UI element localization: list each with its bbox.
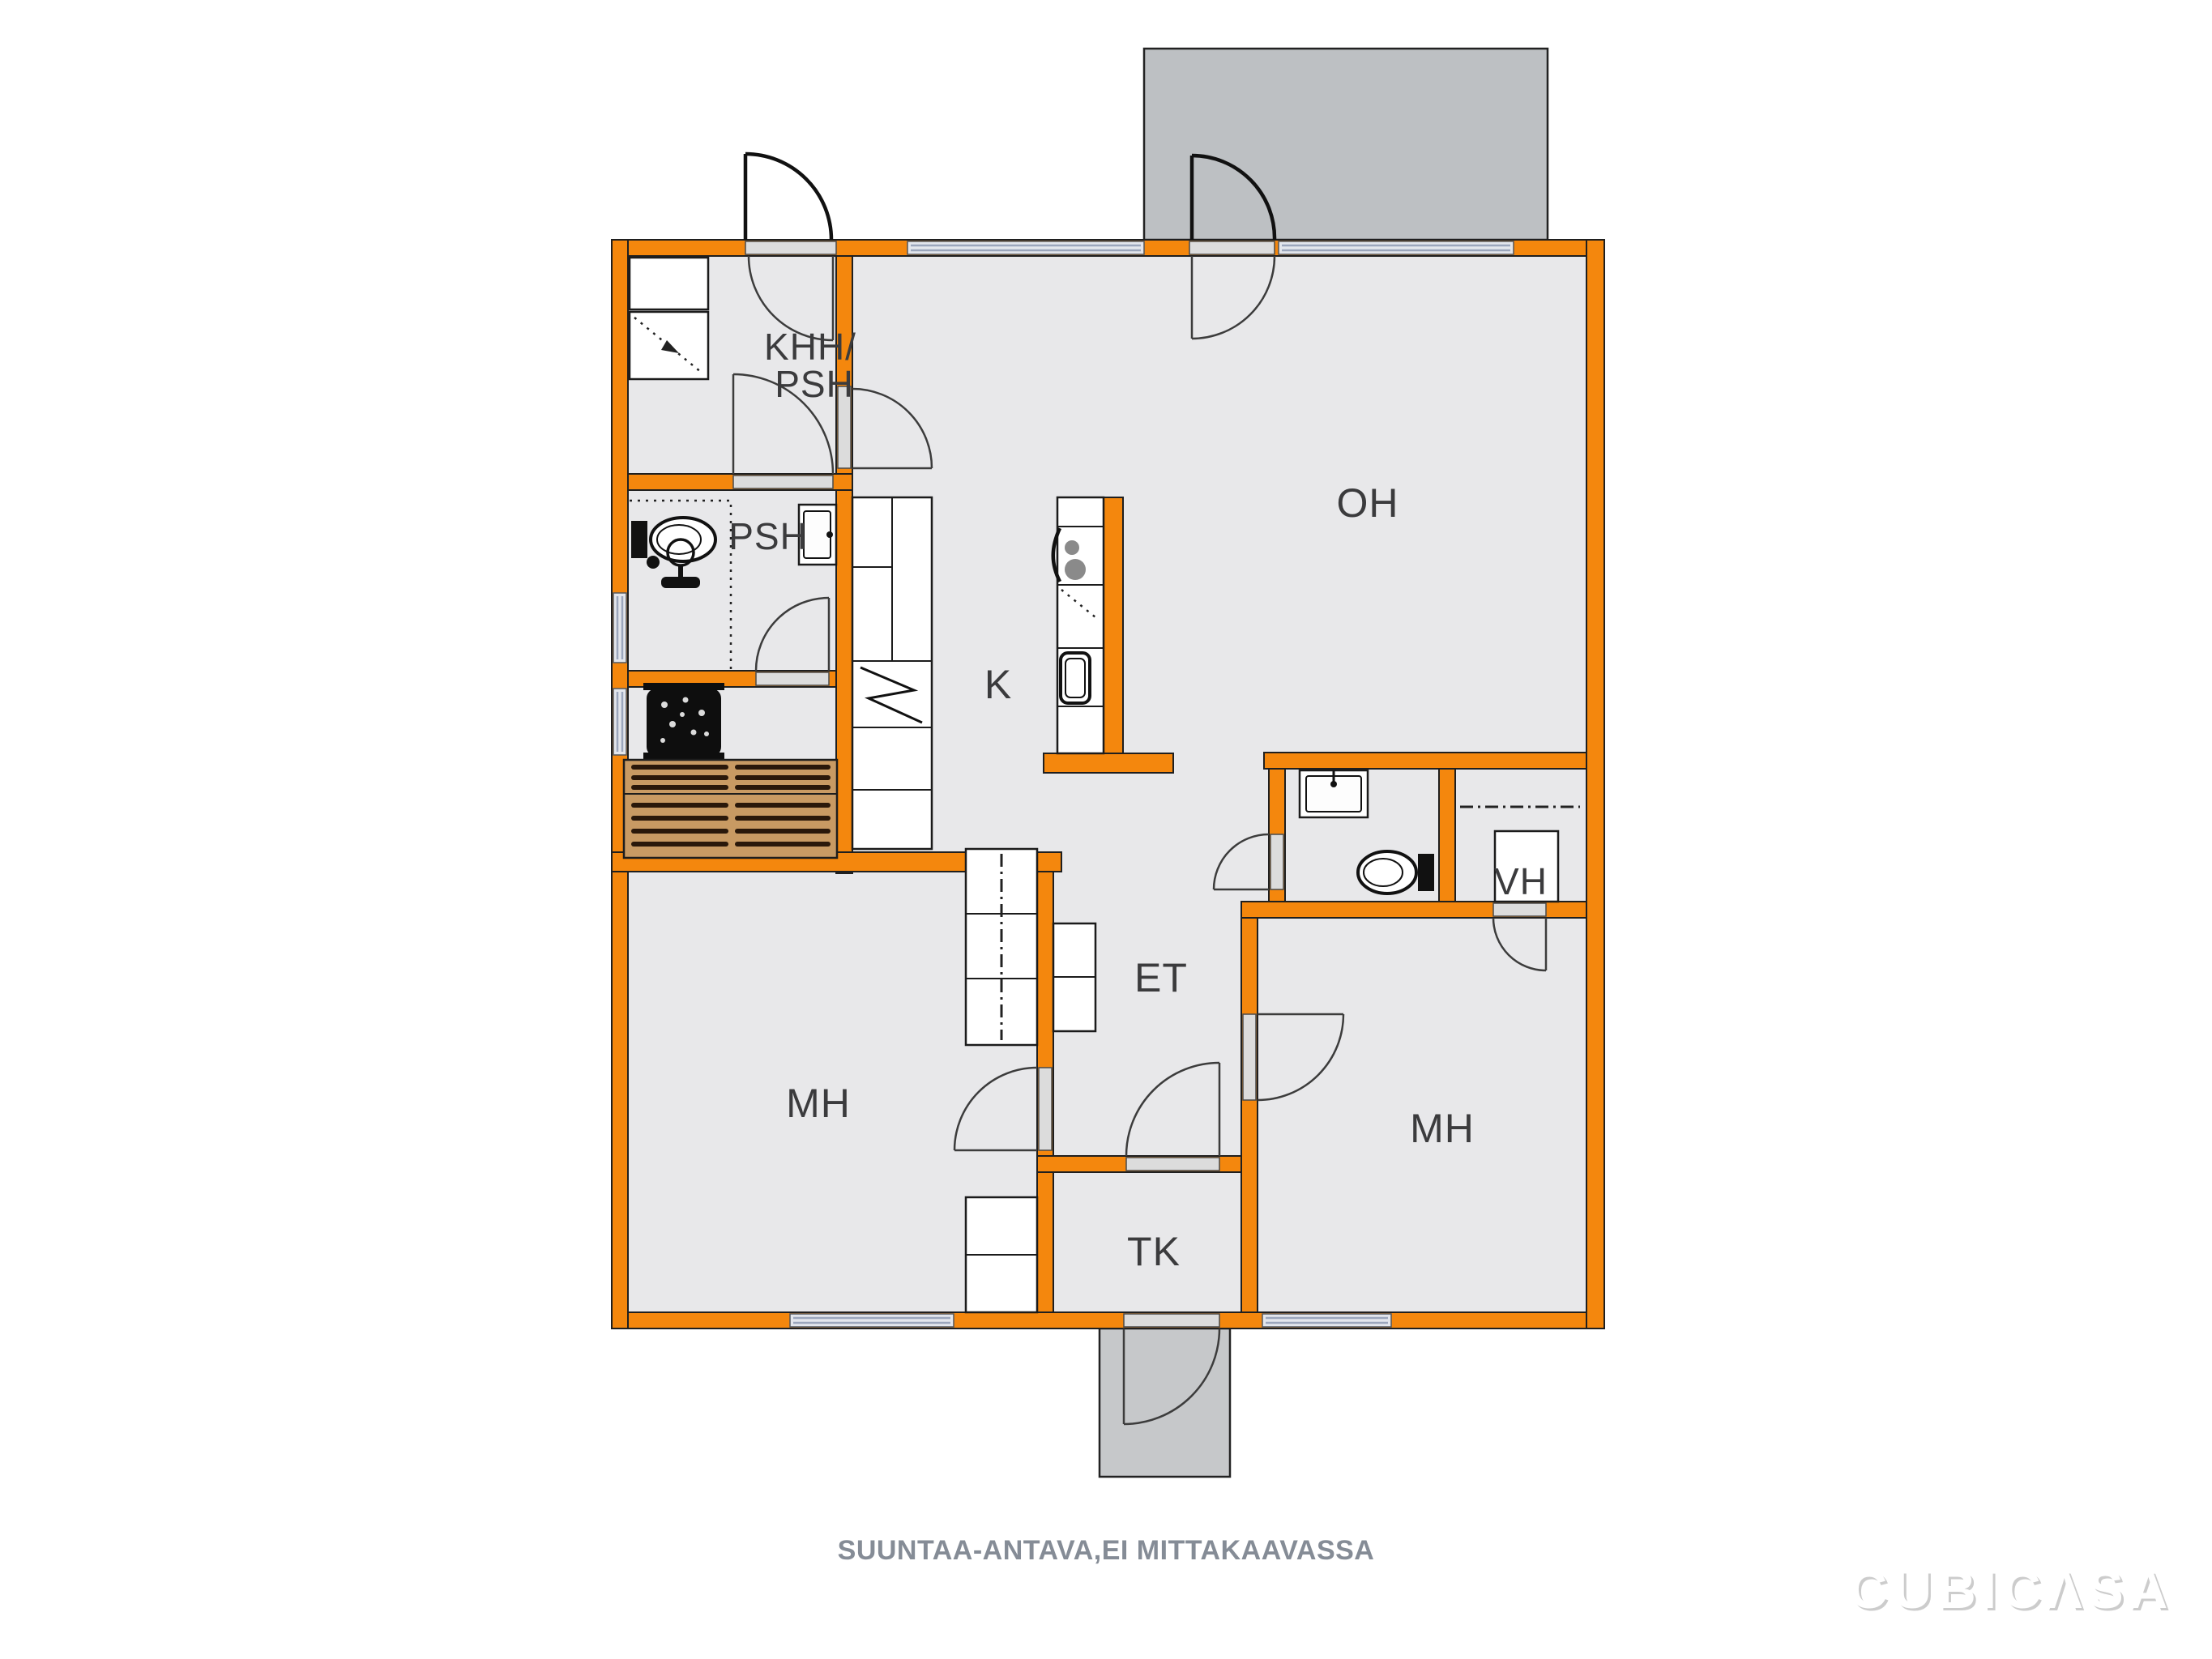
window-left-sauna xyxy=(613,689,626,755)
doorway-tk-porch xyxy=(1124,1314,1219,1327)
room-label-vh: VH xyxy=(1494,860,1548,902)
room-label-tk: TK xyxy=(1127,1229,1181,1274)
room-label-mh-right: MH xyxy=(1410,1106,1475,1151)
room-label-k: K xyxy=(984,662,1012,707)
doorway-khh-exterior xyxy=(745,241,836,254)
wall-sauna-right xyxy=(836,490,852,873)
shower-mixer xyxy=(661,577,700,588)
shower-knob xyxy=(647,556,660,569)
cubicasa-logo: CUBICΛSA CUBICΛSA xyxy=(1849,1559,2176,1622)
room-label-khh-line2: PSH xyxy=(775,363,854,405)
doorway-vh xyxy=(1493,903,1546,916)
floorplan-svg: KHH/ PSH PSH OH K ET MH MH TK VH SUUNTAA… xyxy=(0,0,2212,1659)
wall-wc-vh-divider xyxy=(1439,769,1455,902)
doorway-wc xyxy=(1270,834,1283,889)
disclaimer-text: SUUNTAA-ANTAVA,EI MITTAKAAVASSA xyxy=(838,1535,1375,1566)
wc-toilet xyxy=(1358,851,1416,893)
stove-burner-large xyxy=(1065,559,1086,580)
doorway-khh-psh xyxy=(733,476,833,488)
room-label-oh: OH xyxy=(1337,480,1399,526)
wall-kitchen-island xyxy=(1104,497,1123,753)
wall-wc-vh-top xyxy=(1264,753,1586,769)
kitchen-island xyxy=(1053,497,1104,753)
wc-toilet-tank xyxy=(1418,854,1434,891)
khh-appliances xyxy=(630,258,708,379)
window-top-right xyxy=(1279,241,1514,254)
island-counter xyxy=(1057,497,1104,753)
stove-burner-small xyxy=(1065,540,1079,555)
floorplan-page: KHH/ PSH PSH OH K ET MH MH TK VH SUUNTAA… xyxy=(0,0,2212,1659)
wall-kitchen-island-base xyxy=(1044,753,1173,773)
sink-psh-tap xyxy=(826,531,833,538)
logo-front-text: CUBICΛSA xyxy=(1849,1559,2174,1619)
doorway-balcony xyxy=(1189,241,1275,254)
room-label-et: ET xyxy=(1134,955,1188,1000)
toilet-tank-icon xyxy=(631,521,647,558)
room-label-khh-line1: KHH/ xyxy=(764,326,856,368)
room-label-mh-left: MH xyxy=(786,1081,851,1126)
sink-wc-tap-dot xyxy=(1330,781,1337,787)
window-bottom-mhright xyxy=(1262,1314,1391,1327)
wall-et-mhright xyxy=(1241,902,1258,1312)
window-left-psh xyxy=(613,593,626,663)
utility-cabinet xyxy=(630,258,708,309)
kitchen-cabinets xyxy=(852,497,932,849)
doorway-mh-left xyxy=(1039,1068,1052,1150)
doorway-mh-right xyxy=(1243,1014,1256,1100)
balcony-area xyxy=(1144,49,1548,240)
room-label-psh: PSH xyxy=(728,515,808,557)
doorway-et-tk xyxy=(1126,1158,1219,1171)
wall-tk-left xyxy=(1037,1172,1053,1312)
wall-exterior-bottom xyxy=(612,1312,1604,1328)
wall-exterior-right xyxy=(1586,240,1604,1328)
window-bottom-mhleft xyxy=(790,1314,954,1327)
entrance-porch xyxy=(1100,1328,1230,1477)
sauna-stove-rail-bottom xyxy=(643,753,724,760)
doorway-psh-sauna xyxy=(756,672,829,685)
et-fixtures xyxy=(1053,923,1095,1031)
window-top-left xyxy=(907,241,1144,254)
